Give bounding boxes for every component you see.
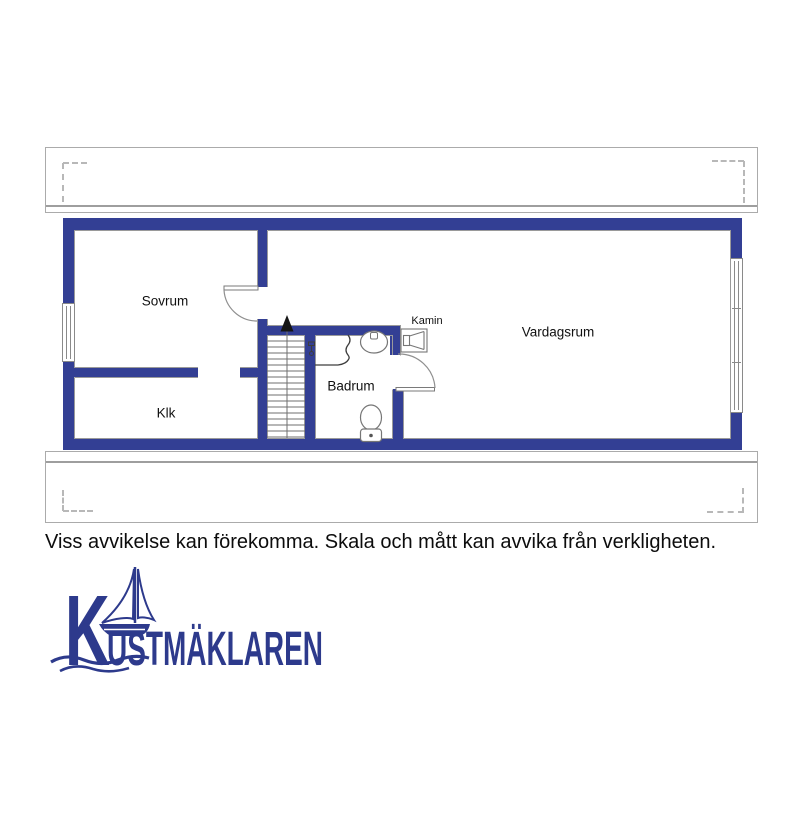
room-label-vardagsrum: Vardagsrum <box>522 325 595 340</box>
disclaimer-text: Viss avvikelse kan förekomma. Skala och … <box>45 531 765 554</box>
room-label-klk: Klk <box>157 406 176 421</box>
fireplace-icon <box>401 329 427 352</box>
fixture-label-kamin: Kamin <box>411 315 442 327</box>
stairs <box>267 331 305 438</box>
room-label-sovrum: Sovrum <box>142 294 189 309</box>
shower-icon <box>309 335 351 365</box>
sink-icon <box>361 331 388 353</box>
door-badrum <box>396 354 435 391</box>
room-label-badrum: Badrum <box>327 379 374 394</box>
door-leaf <box>224 286 258 290</box>
brand-logo: K USTMÄKLAREN <box>48 563 338 683</box>
floorplan-canvas: Sovrum Klk Badrum Vardagsrum Kamin Viss … <box>0 0 800 834</box>
door-swing-arc <box>224 290 257 321</box>
door-swing-arc <box>398 354 435 388</box>
stair-direction-arrow-icon <box>281 315 294 332</box>
toilet-icon <box>361 405 382 442</box>
door-leaf <box>396 388 435 392</box>
floorplan-linework <box>0 0 800 834</box>
door-sovrum <box>224 286 258 321</box>
